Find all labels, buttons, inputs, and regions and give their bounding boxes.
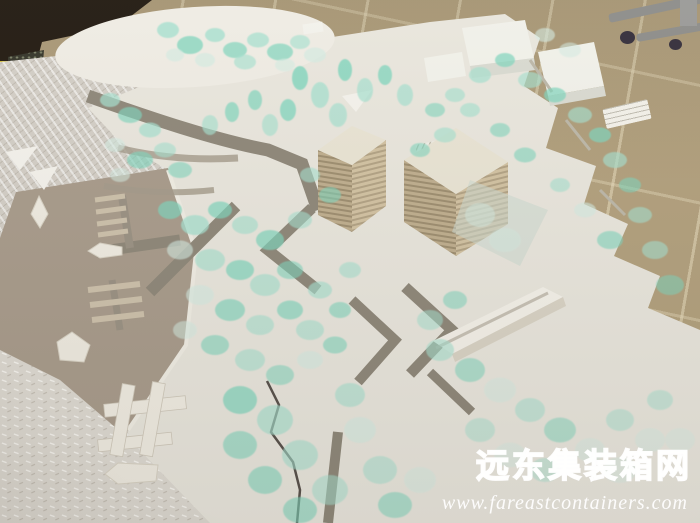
tree-disc [339,262,361,278]
tree-disc [262,114,278,136]
tree-disc [248,466,282,494]
tree-disc [181,215,209,235]
tree-disc [157,22,179,38]
tree-disc [445,88,465,102]
tree-disc [288,212,312,229]
tree-disc [235,349,265,371]
tree-disc [282,440,318,470]
tree-disc [100,93,120,107]
tree-disc [275,59,295,72]
tree-disc [283,497,317,523]
photo-architectural-model: 远东集装箱网 www.fareastcontainers.com [0,0,700,523]
tree-disc [311,82,329,108]
tree-disc [484,378,516,403]
tree-disc [397,84,413,106]
tree-disc [535,28,555,42]
tree-disc [323,337,347,354]
tree-disc [205,28,225,42]
tree-disc [223,431,257,459]
tree-disc [166,49,184,62]
tree-disc [443,291,467,309]
tree-disc [550,178,570,192]
tree-disc [139,123,161,138]
tree-disc [642,241,668,259]
tree-disc [232,216,258,234]
tree-disc [195,249,225,271]
tree-disc [574,203,596,218]
tree-disc [248,90,262,110]
tree-disc [426,339,454,361]
tree-disc [168,162,192,178]
tree-disc [363,456,397,484]
tree-disc [319,187,341,203]
tree-disc [338,59,352,81]
tree-disc [304,48,326,63]
tree-disc [514,148,536,163]
tree-disc [603,152,627,168]
tree-disc [246,315,274,335]
tree-disc [606,409,634,431]
tree-disc [410,143,430,157]
tree-disc [186,285,214,305]
tree-disc [308,282,332,299]
tree-disc [425,103,445,117]
tree-disc [300,168,320,183]
tree-disc [158,201,182,219]
tree-disc [404,467,436,493]
tree-disc [167,241,193,260]
tree-disc [225,102,239,122]
tree-disc [329,302,351,318]
watermark-url: www.fareastcontainers.com [442,492,688,515]
tree-disc [469,67,491,83]
tree-disc [280,99,296,121]
tree-disc [247,33,269,48]
tree-disc [378,492,412,518]
tree-disc [589,128,611,143]
tree-disc [597,231,623,249]
tree-disc [378,65,392,85]
tree-disc [329,103,347,127]
tree-disc [465,203,495,227]
tree-disc [173,321,197,339]
tree-disc [234,55,256,70]
tree-disc [292,66,308,90]
tree-disc [208,202,232,219]
tree-disc [434,128,456,143]
tree-disc [118,107,142,123]
tree-disc [250,274,280,296]
tree-disc [518,72,542,88]
watermark-title: 远东集装箱网 [476,439,692,487]
tree-disc [417,310,443,330]
tree-disc [226,260,254,280]
tree-disc [344,417,376,443]
tree-disc [195,53,215,67]
tree-disc [544,88,566,103]
tree-disc [619,178,641,193]
tree-disc [110,168,130,182]
tree-disc [105,138,125,152]
tree-disc [201,335,229,355]
tree-disc [559,43,581,58]
tree-disc [290,35,310,49]
tree-disc [460,103,480,117]
tree-disc [647,390,673,410]
tree-disc [656,275,684,295]
tree-disc [312,475,348,505]
tree-disc [335,383,365,407]
tree-disc [256,230,284,250]
tree-disc [257,405,293,435]
tree-disc [266,365,294,385]
tree-disc [202,115,218,135]
tree-disc [296,320,324,340]
tree-disc [154,143,176,158]
tree-disc [277,261,303,279]
tree-disc [495,53,515,67]
tree-disc [568,107,592,123]
tree-disc [267,44,293,61]
tree-disc [357,78,373,102]
tree-disc [455,358,485,382]
tree-disc [215,299,245,321]
tree-disc [223,386,257,414]
tree-disc [489,228,521,252]
tree-disc [490,123,510,137]
tree-disc [127,152,153,169]
tree-disc [628,207,652,223]
tree-disc [277,301,303,320]
tree-disc [297,351,323,369]
tree-disc [515,398,545,422]
